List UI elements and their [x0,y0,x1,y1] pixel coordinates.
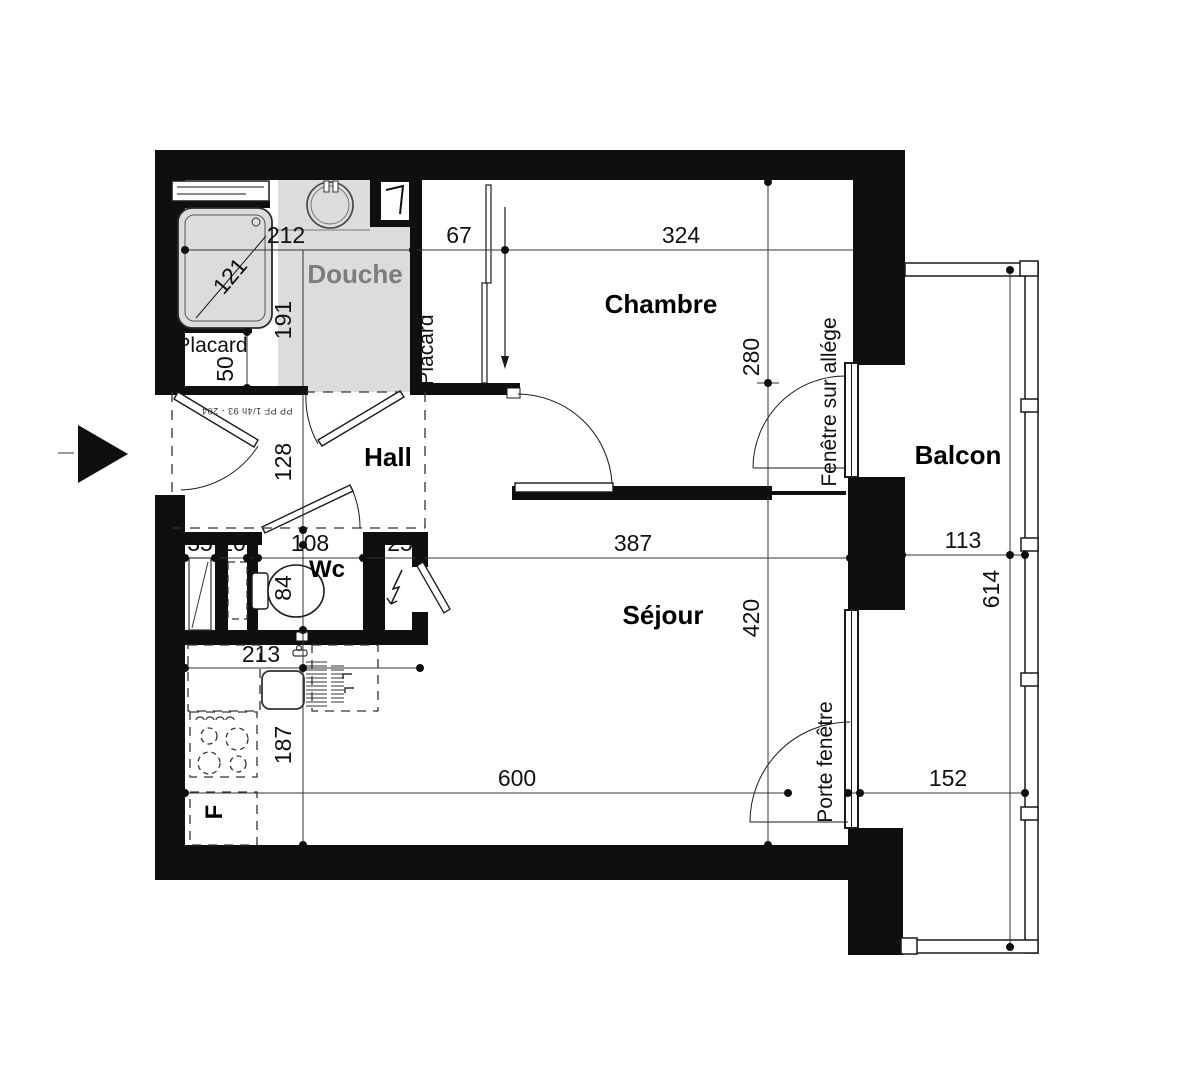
panel-door-ajar [417,562,450,613]
sink-tap-1 [324,181,329,192]
entry-door-leaf [174,392,258,447]
wall-douche-south [172,386,308,395]
dim-balcon-width: 113 [945,527,982,553]
label-entry-door-spec: PP PF 1/4h 93 - 204 [202,406,293,416]
balcony-post-2 [1021,538,1038,551]
toilet-tank [252,573,268,609]
floor-plan-drawing: Douche Chambre Hall Wc Séjour Balcon Pla… [0,0,1199,1080]
dim-wc-depth: 84 [270,575,296,601]
room-label-douche: Douche [307,259,402,289]
chambre-door [507,388,613,492]
balcony-post-bottom-left [901,938,917,954]
sliding-door-panel-2 [482,283,487,383]
niche-dashed-box [228,562,247,619]
balcony-post-top [1020,261,1038,276]
dim-hall-depth: 128 [270,443,296,481]
room-label-balcon: Balcon [915,440,1002,470]
wall-pillar-right-mid [848,477,905,610]
entry-door-arc [181,446,258,490]
dim-20: 20 [220,530,246,556]
dim-douche-width: 212 [267,222,305,248]
dim-placard50: 50 [212,356,238,382]
label-porte-fenetre: Porte fenêtre [814,701,837,822]
douche-door-arc [306,392,318,444]
sliding-door-panel-1 [486,185,491,283]
dim-sejour-length: 600 [498,765,536,791]
balcony-post-4 [1021,807,1038,820]
wc-door [262,485,360,533]
entry-marker [58,425,128,483]
balcony-post-3 [1021,673,1038,686]
burner-4 [230,756,246,772]
wall-left-lower [155,495,185,880]
dish-drainer [306,662,354,706]
kitchen-sink [262,671,304,709]
chambre-door-arc [518,394,612,483]
burner-1 [201,728,217,744]
wall-pillar-right-bottom [848,828,903,955]
cooktop-knobs [196,717,234,720]
balcony-rail-top [905,263,1038,276]
dim-kitchen-counter: 213 [242,641,280,667]
dim-chambre-width: 324 [662,222,701,248]
sink-tap-2 [333,181,338,192]
room-label-wc: Wc [309,556,345,583]
wc-door-leaf [262,485,353,533]
dim-280: 280 [738,338,764,376]
dim-placard67: 67 [446,222,472,248]
shower-drain [252,218,260,226]
balcony-rail-bottom [903,940,1038,953]
electrical-lightning-icon [391,570,402,604]
dim-balcon-length: 614 [978,570,1004,609]
wc-door-arc [352,489,360,528]
wall-pillar-right-top [853,178,905,365]
label-fenetre-allege: Fenêtre sur allége [818,317,841,486]
placard-chambre-fixtures [482,185,509,383]
drainer-lines-right [331,666,344,702]
balcony-post-1 [1021,399,1038,412]
douche-door [306,391,404,446]
entry-arrow-icon [78,425,128,483]
dim-kitchen-depth: 187 [270,726,296,764]
label-fridge: F [201,805,228,820]
dim-sejour-width: 387 [614,530,652,556]
room-label-sejour: Séjour [623,600,704,630]
balcony-railing [901,261,1038,954]
wall-tray-top-bar [170,201,270,208]
room-label-hall: Hall [364,442,412,472]
burner-2 [226,728,248,750]
dim-25: 25 [387,530,413,556]
wall-chambre-south-thin [772,491,846,495]
sliding-direction-arrowhead [501,356,509,369]
dim-balcon-south: 152 [929,765,967,791]
dim-35: 35 [187,530,213,556]
drainer-brackets [343,674,354,693]
wall-top [155,150,905,180]
dim-douche-depth: 191 [270,301,296,339]
chambre-door-leaf [515,483,613,492]
wall-grille [172,181,269,201]
floor-plan-page: Douche Chambre Hall Wc Séjour Balcon Pla… [0,0,1199,1080]
label-placard-chambre: Placard [415,314,438,385]
drainer-lines-left [306,662,327,706]
burner-3 [198,752,220,774]
room-label-chambre: Chambre [605,289,718,319]
chambre-door-stub [507,388,520,398]
dim-sejour-depth: 420 [738,599,764,637]
cooktop-unit [190,712,257,777]
dim-108: 108 [291,530,329,556]
douche-door-leaf [318,391,404,446]
label-placard-entry: Placard [176,334,247,357]
balcony-rail-right [1025,263,1038,953]
wall-bottom [155,845,855,880]
